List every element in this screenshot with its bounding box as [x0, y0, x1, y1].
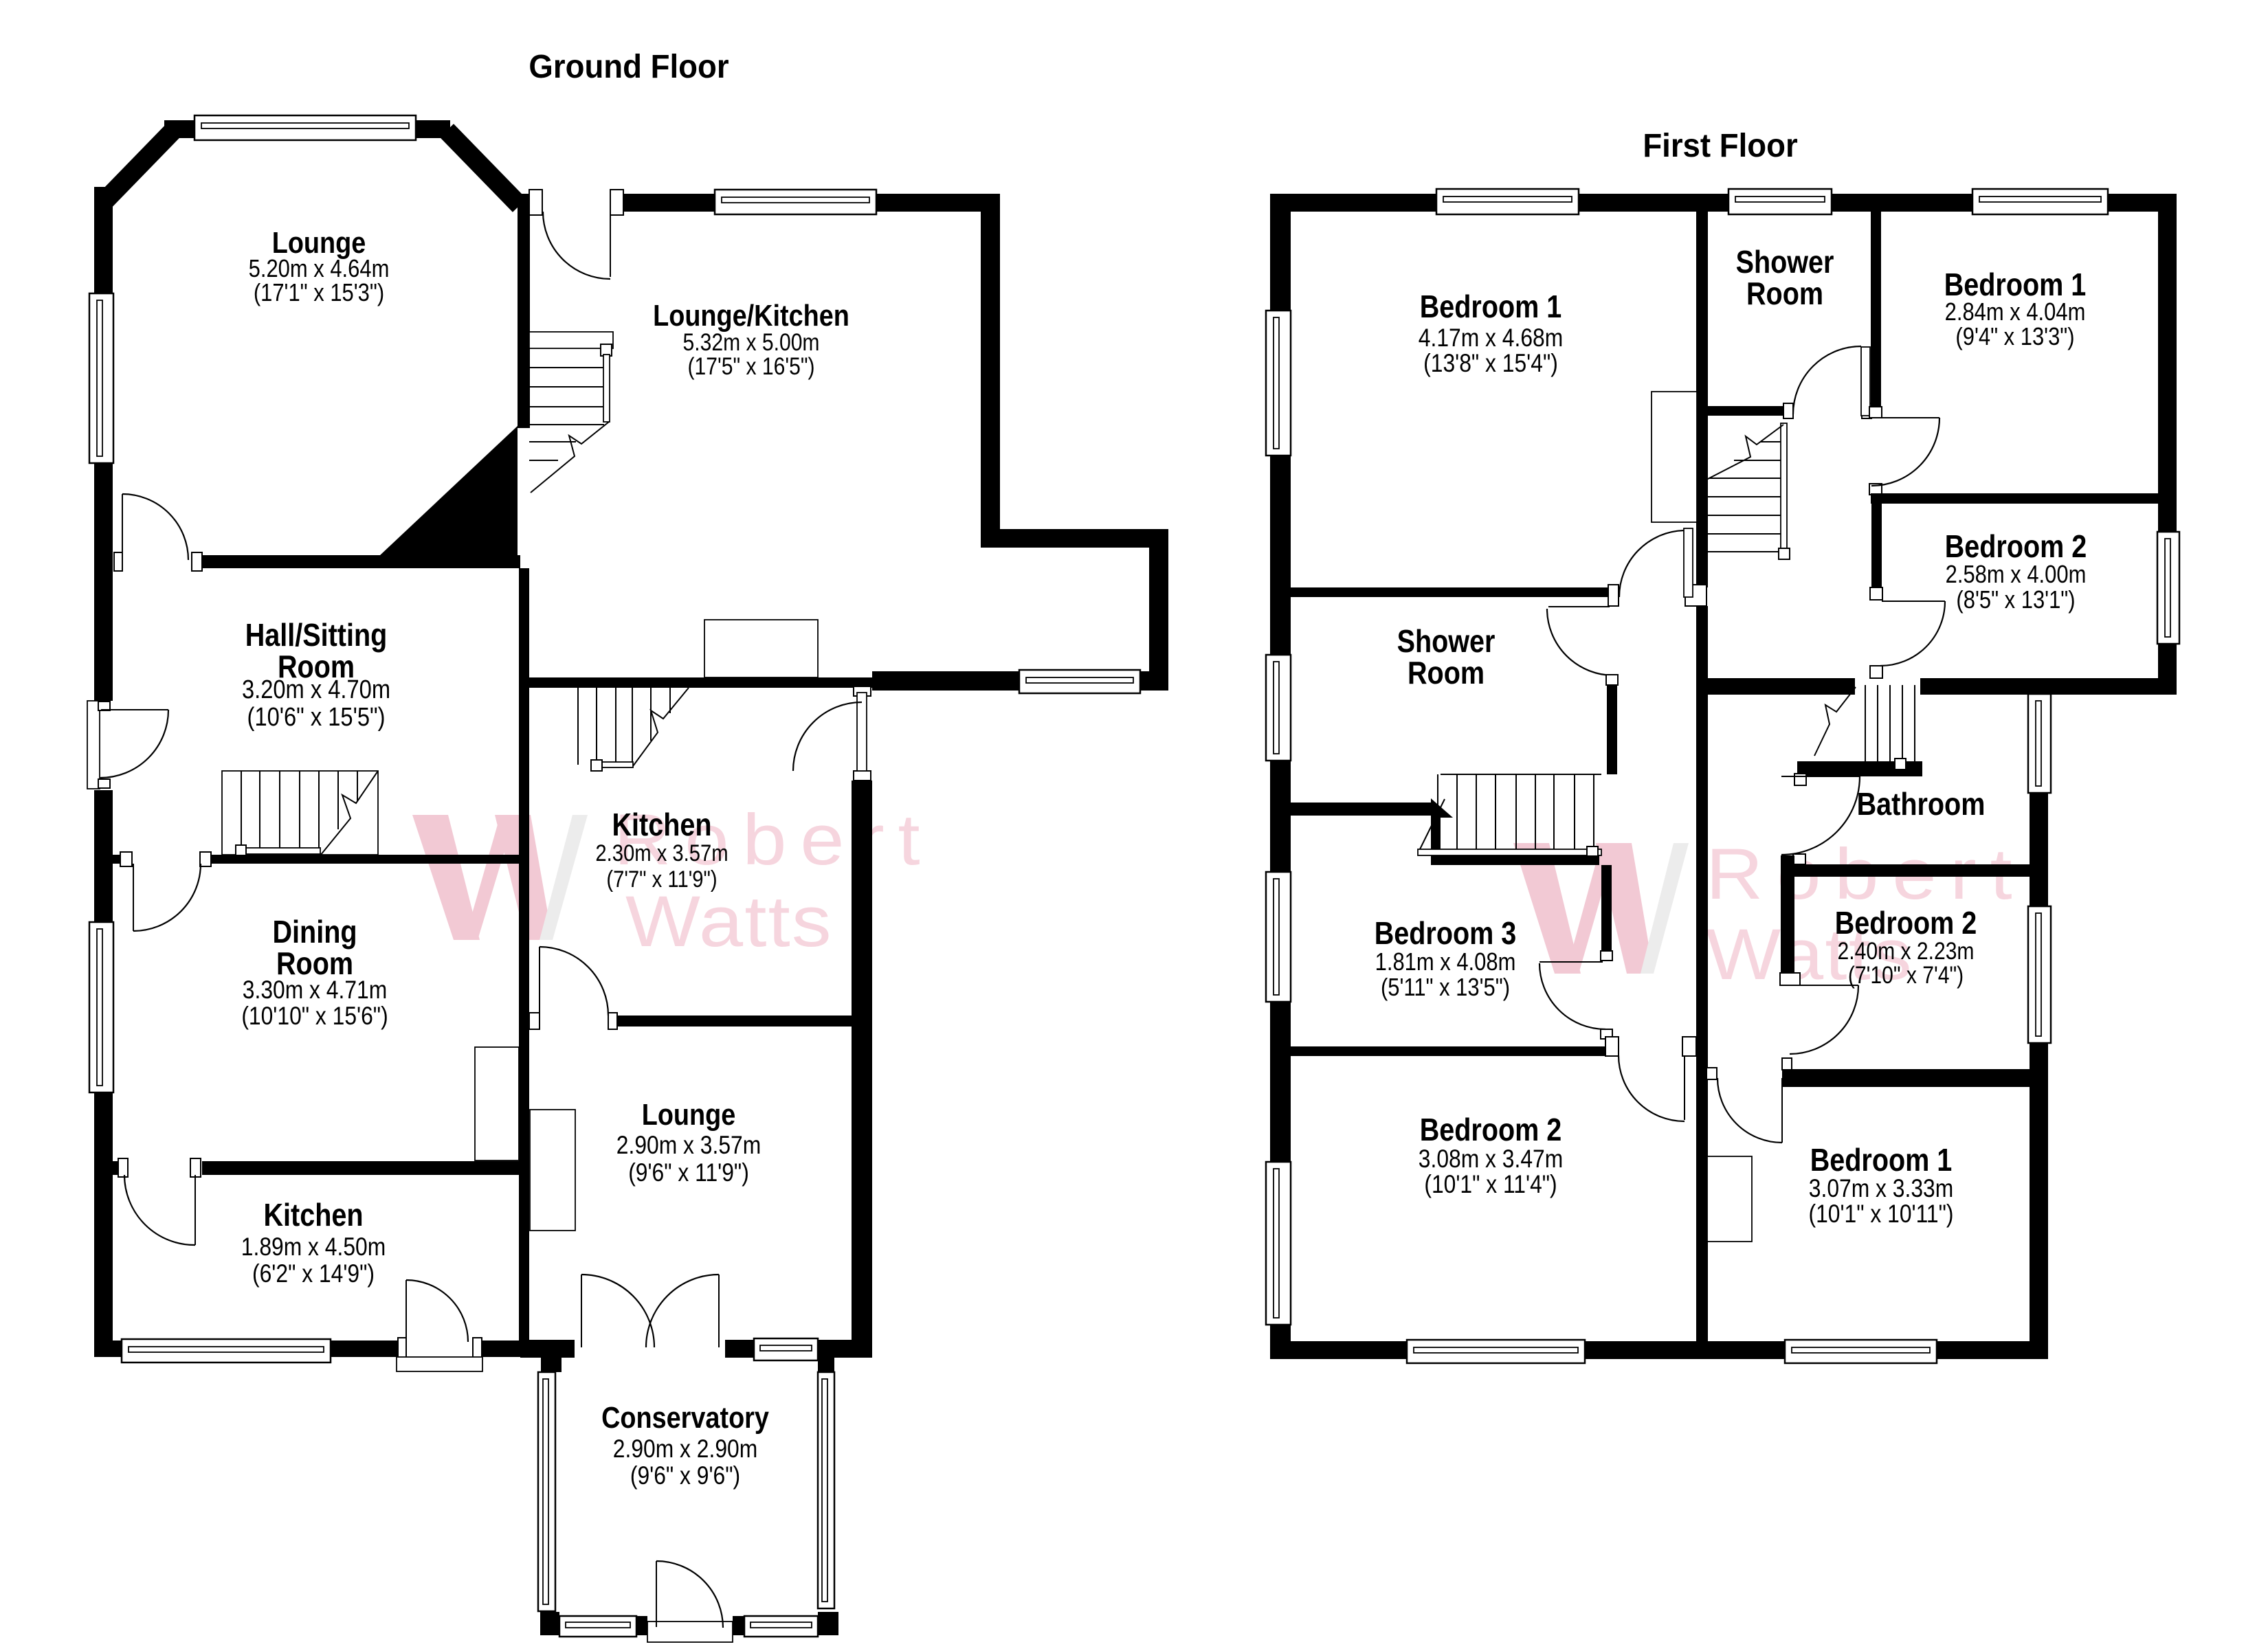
svg-text:Bedroom 1: Bedroom 1 [1944, 267, 2087, 302]
svg-text:(9'6" x 9'6"): (9'6" x 9'6") [630, 1462, 740, 1490]
svg-text:3.07m x 3.33m: 3.07m x 3.33m [1809, 1175, 1953, 1203]
svg-text:(10'1" x 10'11"): (10'1" x 10'11") [1808, 1200, 1953, 1229]
svg-text:(7'10" x 7'4"): (7'10" x 7'4") [1848, 961, 1964, 989]
svg-text:(8'5" x 13'1"): (8'5" x 13'1") [1956, 587, 2075, 614]
svg-text:First Floor: First Floor [1643, 127, 1797, 164]
svg-text:2.30m x 3.57m: 2.30m x 3.57m [595, 840, 728, 866]
svg-text:Bedroom 3: Bedroom 3 [1375, 916, 1517, 951]
svg-text:Ground Floor: Ground Floor [529, 48, 729, 85]
svg-text:Room: Room [1746, 276, 1823, 311]
svg-text:Lounge/Kitchen: Lounge/Kitchen [653, 298, 849, 332]
svg-text:5.20m x 4.64m: 5.20m x 4.64m [249, 256, 390, 283]
svg-text:2.90m x 2.90m: 2.90m x 2.90m [613, 1435, 757, 1463]
svg-text:2.58m x 4.00m: 2.58m x 4.00m [1946, 561, 2087, 589]
svg-text:Room: Room [1408, 655, 1485, 691]
svg-text:2.40m x 2.23m: 2.40m x 2.23m [1838, 937, 1975, 965]
svg-text:Lounge: Lounge [272, 225, 366, 259]
svg-text:(17'1" x 15'3"): (17'1" x 15'3") [254, 280, 384, 307]
svg-text:2.90m x 3.57m: 2.90m x 3.57m [616, 1132, 761, 1160]
svg-text:Bedroom 2: Bedroom 2 [1945, 529, 2087, 564]
svg-text:Bedroom 1: Bedroom 1 [1810, 1143, 1953, 1178]
svg-text:3.20m x 4.70m: 3.20m x 4.70m [242, 675, 390, 704]
svg-text:Bedroom 2: Bedroom 2 [1420, 1112, 1562, 1147]
svg-text:3.08m x 3.47m: 3.08m x 3.47m [1419, 1145, 1563, 1174]
svg-text:Bathroom: Bathroom [1857, 787, 1986, 822]
svg-text:(10'10" x 15'6"): (10'10" x 15'6") [241, 1002, 388, 1031]
svg-text:(10'6" x 15'5"): (10'6" x 15'5") [247, 702, 386, 732]
svg-text:(13'8" x 15'4"): (13'8" x 15'4") [1423, 350, 1558, 378]
svg-text:(5'11" x 13'5"): (5'11" x 13'5") [1381, 974, 1510, 1002]
svg-text:(10'1" x 11'4"): (10'1" x 11'4") [1424, 1171, 1557, 1199]
svg-text:Kitchen: Kitchen [263, 1198, 363, 1233]
svg-text:3.30m x 4.71m: 3.30m x 4.71m [243, 976, 387, 1005]
svg-text:4.17m x 4.68m: 4.17m x 4.68m [1419, 324, 1563, 352]
svg-text:(9'6" x 11'9"): (9'6" x 11'9") [628, 1159, 749, 1187]
svg-text:Hall/Sitting: Hall/Sitting [245, 618, 388, 653]
svg-text:Shower: Shower [1736, 245, 1834, 280]
svg-text:(6'2" x 14'9"): (6'2" x 14'9") [252, 1260, 375, 1288]
svg-text:Conservatory: Conservatory [601, 1400, 769, 1434]
svg-text:(9'4" x 13'3"): (9'4" x 13'3") [1955, 324, 2074, 351]
svg-text:Bedroom 2: Bedroom 2 [1835, 906, 1977, 941]
svg-text:Shower: Shower [1397, 624, 1496, 659]
svg-text:Kitchen: Kitchen [612, 807, 711, 842]
svg-text:(17'5" x 16'5"): (17'5" x 16'5") [687, 352, 814, 380]
svg-text:5.32m x 5.00m: 5.32m x 5.00m [683, 328, 820, 356]
svg-text:1.89m x 4.50m: 1.89m x 4.50m [241, 1233, 386, 1261]
svg-text:(7'7" x 11'9"): (7'7" x 11'9") [606, 866, 717, 893]
svg-text:Dining: Dining [272, 915, 357, 950]
svg-text:Lounge: Lounge [642, 1097, 736, 1131]
svg-text:2.84m x 4.04m: 2.84m x 4.04m [1945, 299, 2086, 326]
svg-text:Watts: Watts [625, 882, 833, 962]
svg-text:1.81m x 4.08m: 1.81m x 4.08m [1375, 949, 1516, 976]
svg-text:Bedroom 1: Bedroom 1 [1420, 289, 1562, 324]
